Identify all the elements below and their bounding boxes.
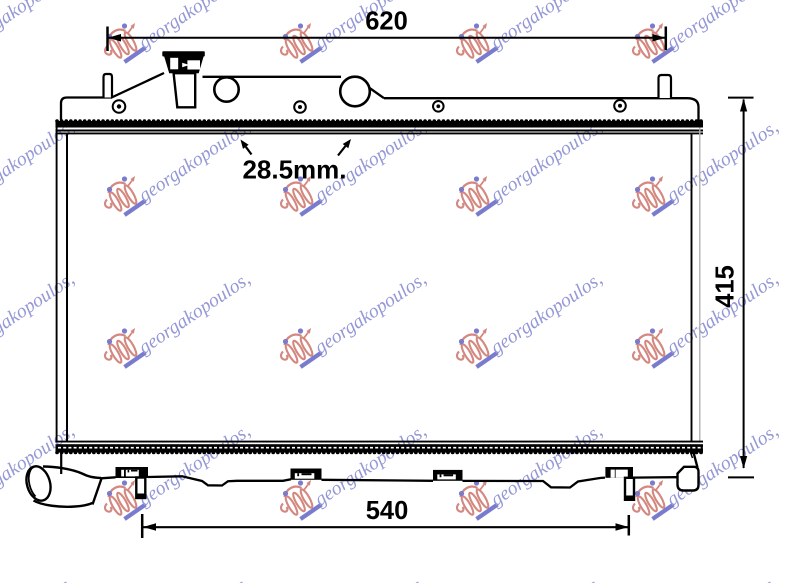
svg-text:620: 620 — [365, 8, 408, 36]
svg-text:415: 415 — [712, 265, 740, 308]
svg-text:28.5mm.: 28.5mm. — [242, 155, 346, 185]
svg-text:540: 540 — [366, 497, 409, 525]
